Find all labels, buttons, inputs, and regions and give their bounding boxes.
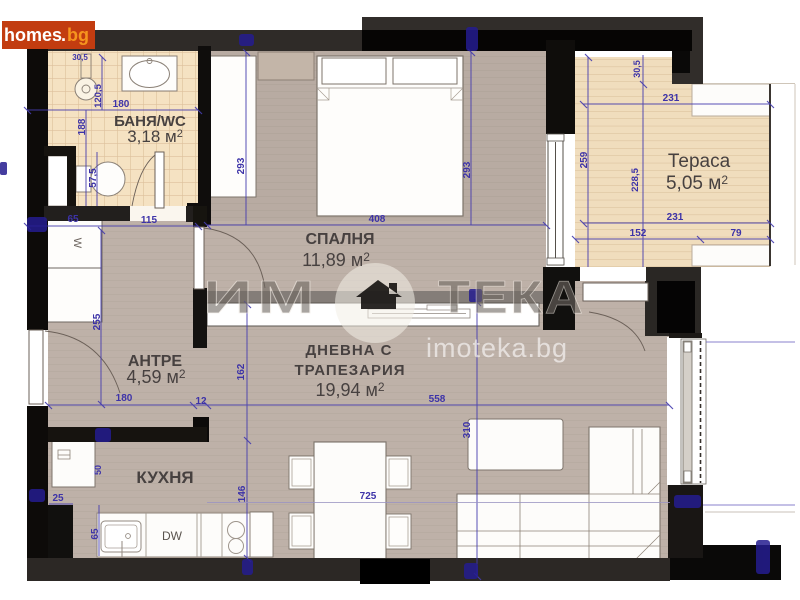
svg-text:3,18 м2: 3,18 м2	[127, 127, 183, 146]
svg-text:homes: homes	[4, 25, 62, 45]
svg-text:152: 152	[630, 228, 647, 239]
svg-text:11,89 м2: 11,89 м2	[302, 250, 370, 270]
svg-text:19,94 м2: 19,94 м2	[315, 380, 384, 400]
svg-text:12: 12	[195, 396, 207, 407]
svg-text:imoteka.bg: imoteka.bg	[426, 333, 568, 363]
svg-text:231: 231	[663, 93, 680, 104]
svg-text:162: 162	[236, 363, 247, 380]
svg-text:293: 293	[236, 157, 247, 174]
svg-text:180: 180	[113, 99, 130, 110]
svg-text:5,05 м2: 5,05 м2	[666, 173, 728, 194]
svg-text:50: 50	[93, 465, 103, 475]
svg-text:65: 65	[90, 528, 101, 540]
svg-text:259: 259	[579, 151, 590, 168]
svg-text:25: 25	[52, 493, 64, 504]
svg-text:ТРАПЕЗАРИЯ: ТРАПЕЗАРИЯ	[294, 362, 405, 379]
svg-text:146: 146	[237, 485, 248, 502]
svg-text:188: 188	[77, 118, 88, 135]
svg-text:79: 79	[730, 228, 742, 239]
svg-text:30,5: 30,5	[632, 60, 642, 78]
svg-text:ТЕКА: ТЕКА	[438, 271, 585, 323]
svg-text:СПАЛНЯ: СПАЛНЯ	[305, 231, 374, 248]
svg-text:30,5: 30,5	[72, 53, 88, 62]
svg-text:W: W	[71, 238, 83, 249]
svg-text:725: 725	[360, 491, 377, 502]
svg-text:КУХНЯ: КУХНЯ	[136, 468, 193, 487]
svg-text:115: 115	[141, 215, 158, 226]
svg-text:4,59 м2: 4,59 м2	[126, 367, 185, 387]
svg-text:408: 408	[369, 214, 386, 225]
svg-text:Тераса: Тераса	[668, 151, 731, 172]
svg-text:228,5: 228,5	[630, 167, 641, 191]
svg-text:57,5: 57,5	[88, 168, 99, 188]
svg-text:180: 180	[116, 393, 133, 404]
svg-text:231: 231	[667, 212, 684, 223]
svg-text:120,5: 120,5	[93, 83, 104, 107]
svg-text:.: .	[61, 25, 66, 45]
svg-text:255: 255	[92, 313, 103, 330]
svg-text:310: 310	[462, 421, 473, 438]
svg-text:293: 293	[462, 161, 473, 178]
svg-text:bg: bg	[67, 25, 89, 45]
svg-text:65: 65	[67, 214, 79, 225]
svg-text:558: 558	[429, 394, 446, 405]
svg-text:ДНЕВНА С: ДНЕВНА С	[305, 342, 392, 359]
svg-text:ИМ: ИМ	[203, 272, 319, 323]
svg-text:DW: DW	[162, 529, 183, 543]
